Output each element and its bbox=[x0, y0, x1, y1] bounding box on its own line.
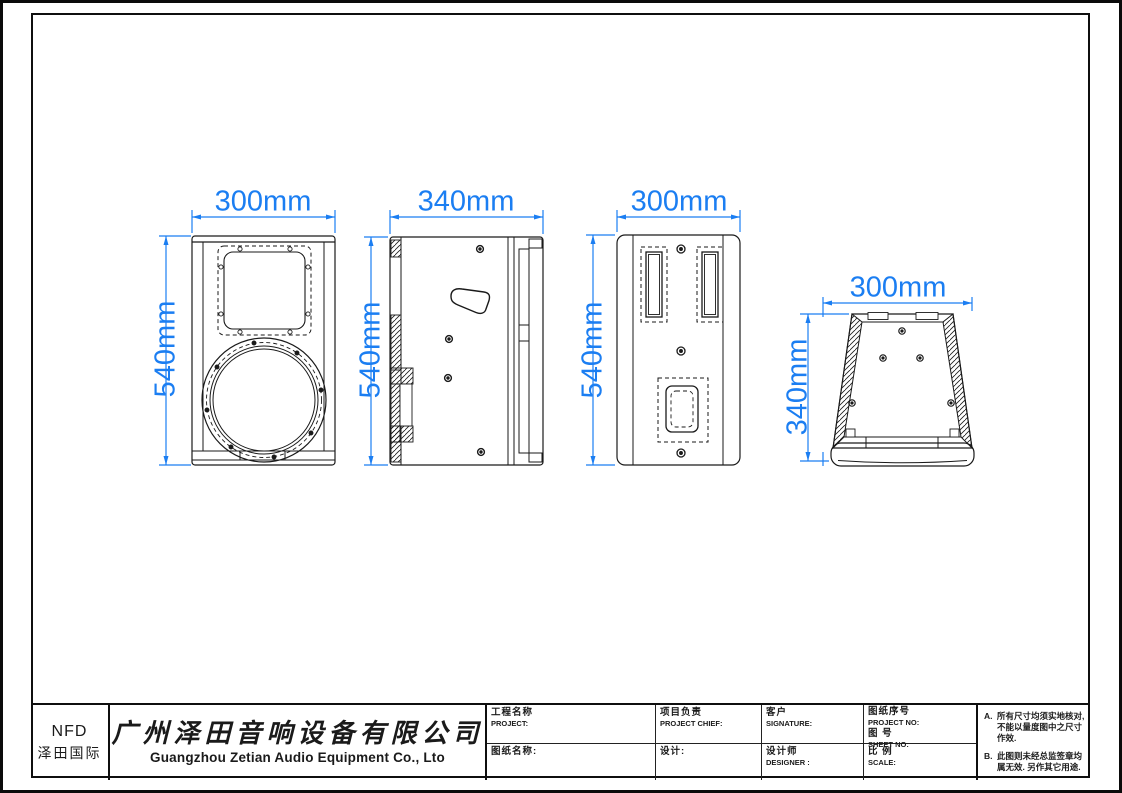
title-block: NFD 泽田国际 广州泽田音响设备有限公司 Guangzhou Zetian A… bbox=[31, 703, 1090, 778]
company-name-en: Guangzhou Zetian Audio Equipment Co., Lt… bbox=[150, 750, 445, 765]
sheet-no-label-cn: 图 号 bbox=[868, 729, 972, 740]
project-no-label-cn: 图纸序号 bbox=[868, 707, 972, 718]
numbers-cell: 图纸序号 PROJECT NO: 图 号 SHEET NO: 比 例 SCALE… bbox=[864, 705, 978, 780]
logo-text: NFD bbox=[52, 723, 88, 741]
company-name-cn: 广州泽田音响设备有限公司 bbox=[111, 720, 483, 749]
client-label-en: SIGNATURE: bbox=[766, 719, 859, 728]
logo-subtext: 泽田国际 bbox=[38, 743, 102, 763]
note-a-id: A. bbox=[984, 711, 997, 744]
notes-cell: A. 所有尺寸均须实地核对, 不能以量度图中之尺寸作效. B. 此图则未经总监签… bbox=[978, 705, 1090, 780]
chief-cell: 项目负责 PROJECT CHIEF: 设计: bbox=[656, 705, 762, 780]
drawing-border bbox=[31, 13, 1090, 778]
chief-label-en: PROJECT CHIEF: bbox=[660, 719, 757, 728]
drawing-name-label: 图纸名称: bbox=[491, 747, 651, 758]
company-name: 广州泽田音响设备有限公司 Guangzhou Zetian Audio Equi… bbox=[110, 705, 487, 780]
designer-label-en: DESIGNER : bbox=[766, 758, 859, 767]
note-b: B. 此图则未经总监签章均属无效. 另作其它用途. bbox=[984, 751, 1085, 773]
note-b-text: 此图则未经总监签章均属无效. 另作其它用途. bbox=[997, 751, 1085, 773]
scale-label-en: SCALE: bbox=[868, 758, 972, 767]
note-a-text: 所有尺寸均须实地核对, 不能以量度图中之尺寸作效. bbox=[997, 711, 1085, 744]
chief-label-cn: 项目负责 bbox=[660, 708, 757, 719]
scale-label-cn: 比 例 bbox=[868, 747, 972, 758]
client-label-cn: 客户 bbox=[766, 708, 859, 719]
project-no-label-en: PROJECT NO: bbox=[868, 718, 972, 727]
project-label-en: PROJECT: bbox=[491, 719, 651, 728]
project-cell: 工程名称 PROJECT: 图纸名称: bbox=[487, 705, 656, 780]
note-a: A. 所有尺寸均须实地核对, 不能以量度图中之尺寸作效. bbox=[984, 711, 1085, 744]
client-cell: 客户 SIGNATURE: 设计师 DESIGNER : bbox=[762, 705, 864, 780]
company-logo: NFD 泽田国际 bbox=[31, 705, 110, 780]
design-label: 设计: bbox=[660, 747, 757, 758]
note-b-id: B. bbox=[984, 751, 997, 773]
designer-label-cn: 设计师 bbox=[766, 747, 859, 758]
project-label-cn: 工程名称 bbox=[491, 708, 651, 719]
drawing-sheet: 300mm 540mm 340mm 540mm 300mm 540mm 300m… bbox=[0, 0, 1122, 793]
